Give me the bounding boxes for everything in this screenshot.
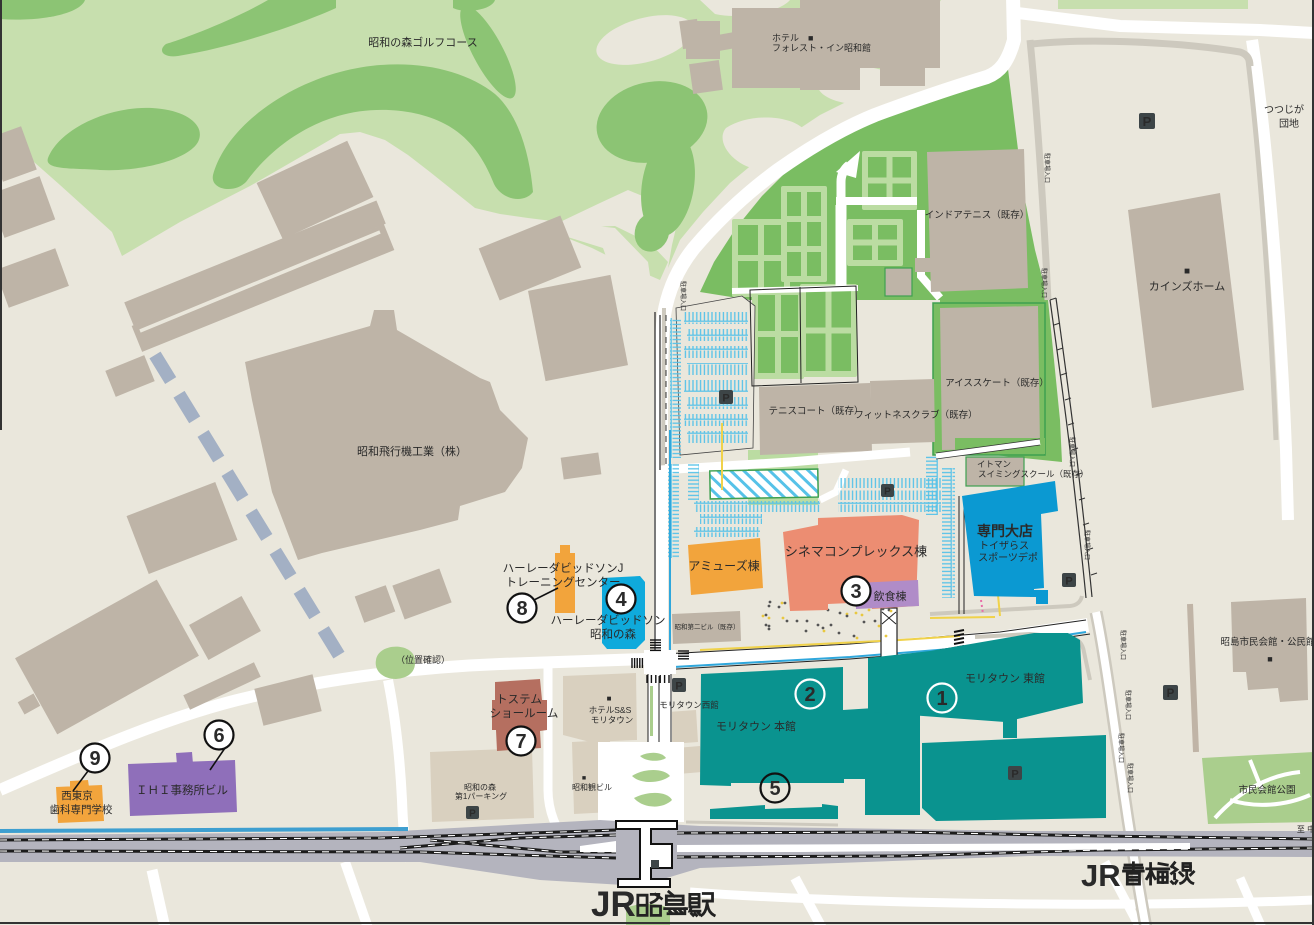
svg-text:9: 9 xyxy=(89,748,100,770)
svg-text:P: P xyxy=(1065,576,1072,588)
svg-text:専門大店: 専門大店 xyxy=(977,523,1033,539)
svg-text:昭和観ビル: 昭和観ビル xyxy=(572,782,612,792)
svg-text:JR: JR xyxy=(591,885,636,924)
svg-text:駐車場入口: 駐車場入口 xyxy=(679,281,687,311)
svg-text:カインズホーム: カインズホーム xyxy=(1149,279,1225,293)
svg-text:昭和飛行機工業（株）: 昭和飛行機工業（株） xyxy=(357,444,467,458)
svg-text:フォレスト・イン昭和館: フォレスト・イン昭和館 xyxy=(772,42,871,53)
svg-text:至 中: 至 中 xyxy=(1297,824,1314,834)
svg-text:アイススケート（既存）: アイススケート（既存） xyxy=(945,377,1049,389)
svg-text:トステム: トステム xyxy=(496,693,542,706)
svg-text:スポーツデポ: スポーツデポ xyxy=(978,551,1038,564)
svg-text:イトマン: イトマン xyxy=(977,459,1011,469)
svg-text:昭和の森: 昭和の森 xyxy=(590,627,636,641)
svg-text:トレーニングセンター: トレーニングセンター xyxy=(506,575,621,589)
svg-text:P: P xyxy=(1143,114,1152,129)
svg-text:6: 6 xyxy=(213,725,224,747)
svg-text:駐車場入口: 駐車場入口 xyxy=(1117,733,1125,763)
svg-text:団地: 団地 xyxy=(1279,117,1299,130)
svg-text:駐車場入口: 駐車場入口 xyxy=(1083,530,1091,560)
svg-text:歯科専門学校: 歯科専門学校 xyxy=(50,803,113,816)
svg-text:昭和の森: 昭和の森 xyxy=(464,782,496,792)
svg-text:3: 3 xyxy=(850,581,861,603)
svg-text:アミューズ棟: アミューズ棟 xyxy=(688,558,759,573)
svg-text:飲食棟: 飲食棟 xyxy=(874,589,907,603)
svg-text:駐車場入口: 駐車場入口 xyxy=(1126,763,1134,793)
svg-text:インドアテニス（既存）: インドアテニス（既存） xyxy=(925,209,1030,221)
svg-text:ショールーム: ショールーム xyxy=(490,707,559,720)
svg-text:7: 7 xyxy=(515,731,526,753)
svg-text:駐車場入口: 駐車場入口 xyxy=(1040,268,1048,298)
svg-text:トイザらス: トイザらス xyxy=(979,540,1029,552)
svg-text:（位置確認）: （位置確認） xyxy=(396,654,450,665)
svg-text:ハーレーダビッドソン: ハーレーダビッドソン xyxy=(551,613,666,627)
svg-text:昭和の森ゴルフコース: 昭和の森ゴルフコース xyxy=(368,35,477,49)
svg-text:ホテルS&S: ホテルS&S xyxy=(589,705,632,715)
svg-text:■: ■ xyxy=(582,775,586,782)
svg-text:モリタウン: モリタウン xyxy=(591,715,634,725)
svg-text:P: P xyxy=(1167,688,1175,700)
svg-text:P: P xyxy=(722,393,729,405)
svg-text:フィットネスクラブ（既存）: フィットネスクラブ（既存） xyxy=(854,409,977,421)
svg-text:第1パーキング: 第1パーキング xyxy=(455,791,507,801)
svg-text:■: ■ xyxy=(607,694,612,703)
svg-text:■: ■ xyxy=(1267,654,1272,664)
svg-text:西東京: 西東京 xyxy=(61,789,93,802)
svg-text:P: P xyxy=(675,681,682,693)
svg-text:テニスコート（既存）: テニスコート（既存） xyxy=(768,405,863,417)
svg-text:ＩＨＩ事務所ビル: ＩＨＩ事務所ビル xyxy=(136,783,228,797)
svg-text:P: P xyxy=(884,487,891,498)
svg-text:5: 5 xyxy=(769,778,780,800)
svg-text:モリタウン西館: モリタウン西館 xyxy=(659,700,719,710)
svg-text:モリタウン 東館: モリタウン 東館 xyxy=(965,671,1045,685)
svg-text:昭和第二ビル（既存）: 昭和第二ビル（既存） xyxy=(675,622,740,631)
svg-text:スイミングスクール（既存）: スイミングスクール（既存） xyxy=(978,469,1089,479)
svg-text:■: ■ xyxy=(1184,266,1190,277)
svg-text:市民会館公園: 市民会館公園 xyxy=(1238,784,1295,796)
svg-text:JR: JR xyxy=(1081,858,1121,893)
svg-text:1: 1 xyxy=(936,688,947,710)
svg-text:シネマコンプレックス棟: シネマコンプレックス棟 xyxy=(785,544,927,559)
svg-text:モリタウン 本館: モリタウン 本館 xyxy=(716,719,796,733)
svg-text:P: P xyxy=(469,809,476,820)
svg-text:ホテル ■: ホテル ■ xyxy=(772,33,813,43)
svg-text:2: 2 xyxy=(804,684,815,706)
svg-text:つつじが: つつじが xyxy=(1264,103,1304,116)
svg-text:ハーレーダビッドソンJ: ハーレーダビッドソンJ xyxy=(503,561,624,575)
svg-text:駐車場入口: 駐車場入口 xyxy=(1124,690,1132,720)
svg-text:4: 4 xyxy=(615,589,627,611)
svg-text:駐車場入口: 駐車場入口 xyxy=(1068,437,1076,467)
svg-text:駐車場入口: 駐車場入口 xyxy=(1119,630,1127,660)
svg-text:8: 8 xyxy=(516,598,527,620)
svg-text:駐車場入口: 駐車場入口 xyxy=(1043,153,1051,183)
svg-text:昭島市民会館・公民館: 昭島市民会館・公民館 xyxy=(1220,636,1314,648)
svg-text:P: P xyxy=(1011,769,1018,781)
